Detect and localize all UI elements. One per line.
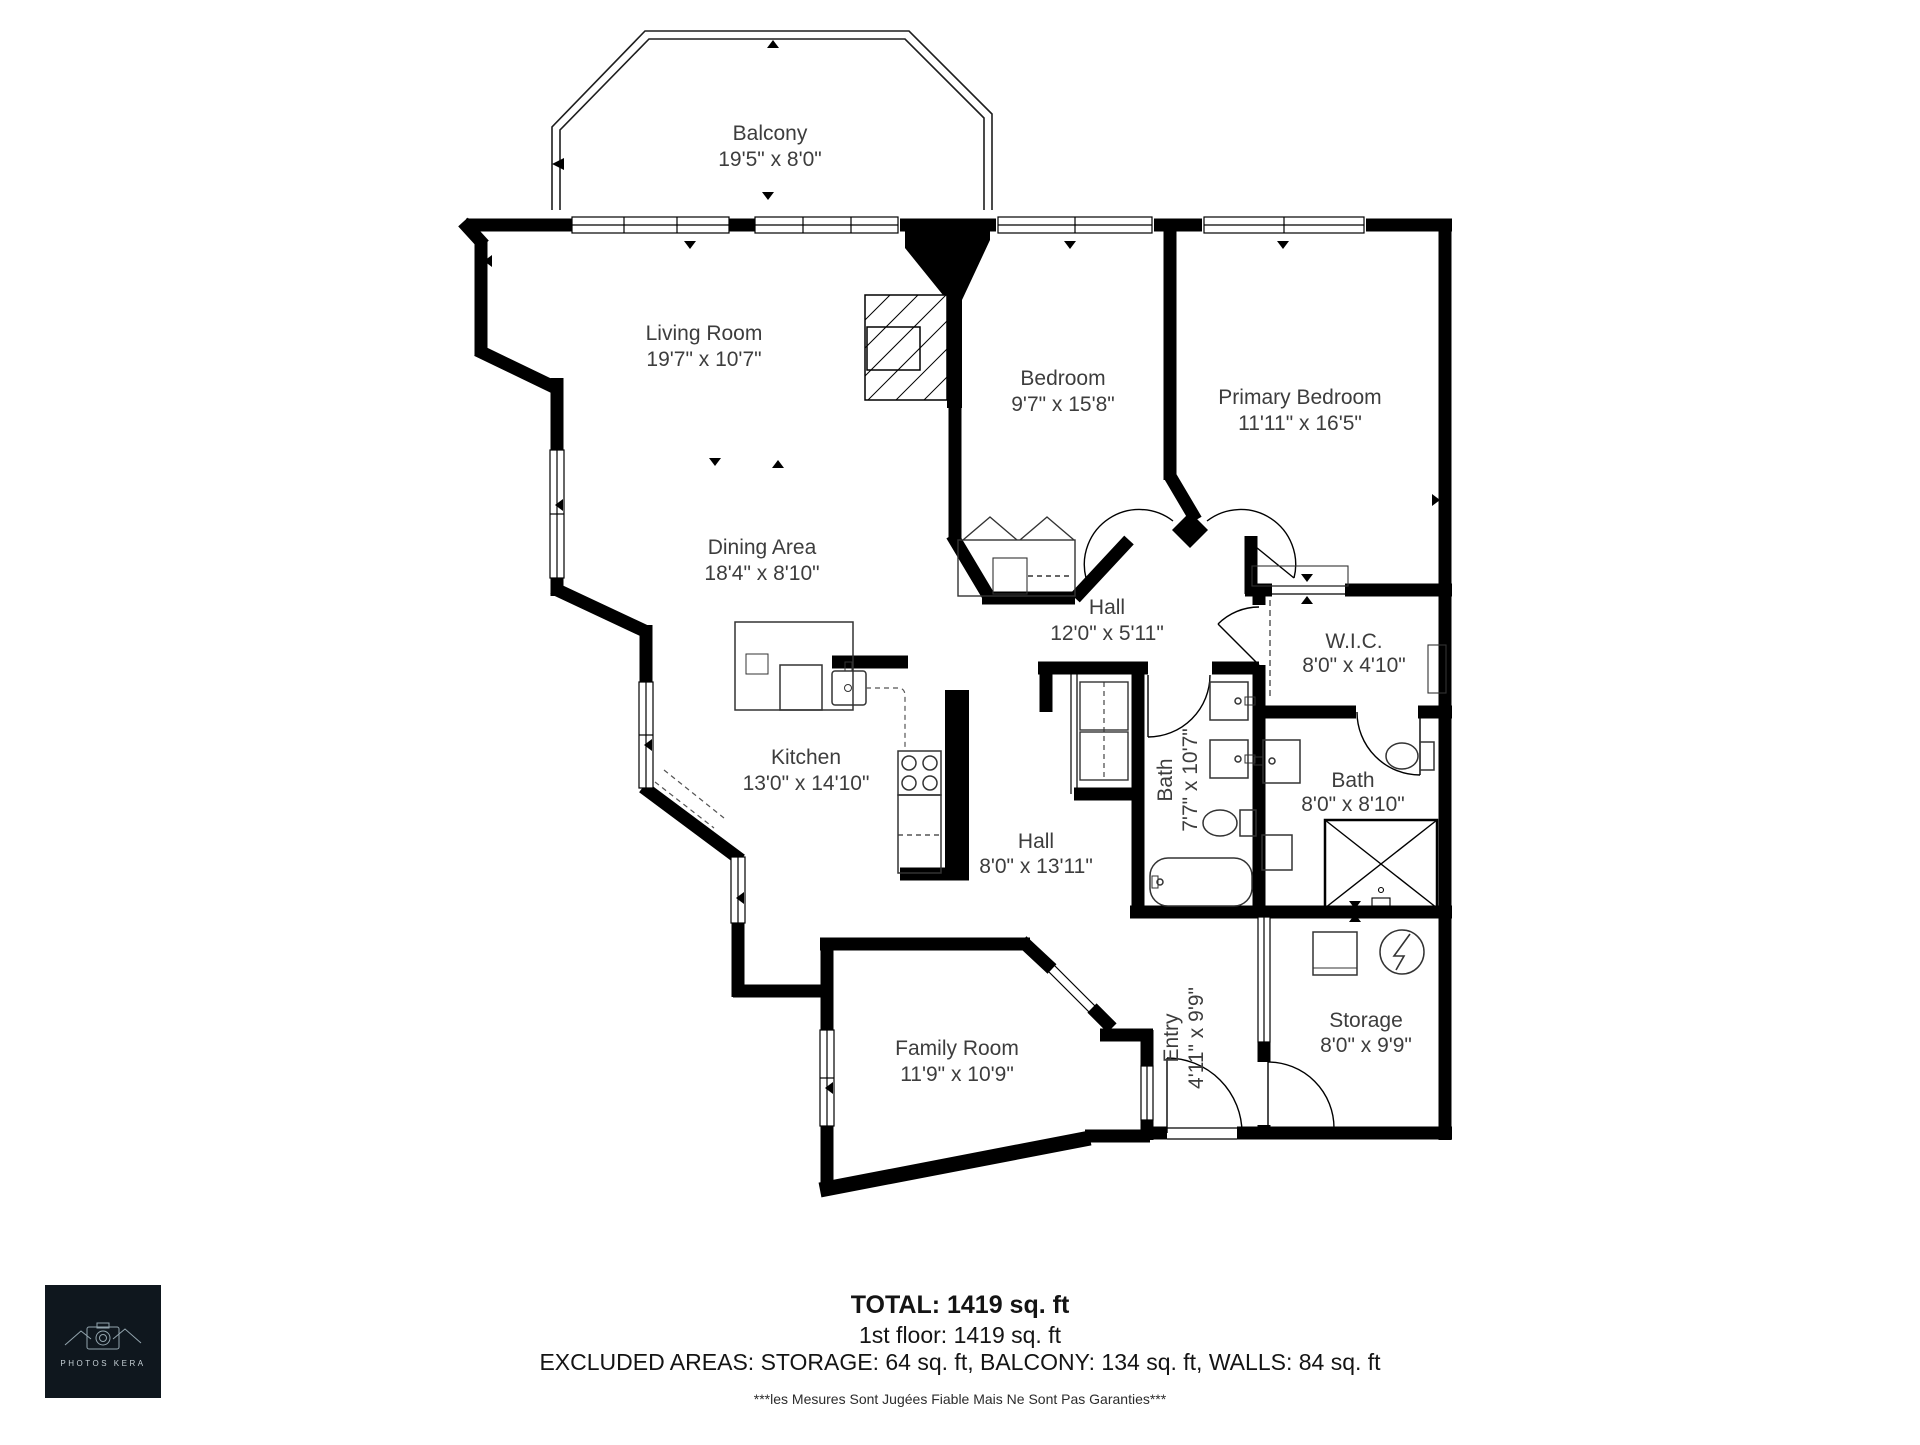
toilet-ensuite [1386, 742, 1434, 770]
total-area-text: TOTAL: 1419 sq. ft [0, 1291, 1920, 1320]
label-primary-bedroom: Primary Bedroom [1218, 386, 1381, 409]
bedroom-door [1084, 509, 1173, 578]
vanity-sink-2 [1210, 740, 1255, 778]
label-bedroom: Bedroom [1020, 367, 1105, 390]
floorplan-page: Balcony 19'5" x 8'0" Living Room 19'7" x… [0, 0, 1920, 1440]
stove [898, 751, 941, 795]
label-bath-main: Bath [1154, 758, 1177, 801]
dims-hall-upper: 12'0" x 5'11" [1050, 622, 1164, 645]
label-wic: W.I.C. [1325, 630, 1382, 653]
excluded-areas-text: EXCLUDED AREAS: STORAGE: 64 sq. ft, BALC… [0, 1349, 1920, 1376]
logo-text: PHOTOS KERA [60, 1359, 145, 1368]
storage-door [1268, 1062, 1334, 1128]
wic-door [1218, 607, 1259, 665]
dims-bath-main: 7'7" x 10'7" [1179, 728, 1202, 832]
disclaimer-text: ***les Mesures Sont Jugées Fiable Mais N… [0, 1391, 1920, 1407]
kitchen-base-cabinet [898, 795, 941, 873]
dims-storage: 8'0" x 9'9" [1320, 1034, 1412, 1057]
label-hall-upper: Hall [1089, 596, 1125, 619]
dims-hall-lower: 8'0" x 13'11" [979, 855, 1093, 878]
dims-bath-ensuite: 8'0" x 8'10" [1301, 793, 1405, 816]
window-family-left [820, 1030, 834, 1126]
dims-living-room: 19'7" x 10'7" [646, 348, 761, 371]
dims-wic: 8'0" x 4'10" [1302, 654, 1406, 677]
window-balcony-left [572, 217, 729, 233]
opening-family-room [1046, 963, 1098, 1015]
bath-ensuite-fixtures [1254, 740, 1437, 908]
door-pillar [1172, 512, 1208, 548]
bath-main-door [1148, 675, 1210, 737]
threshold-primary-wic [1272, 586, 1345, 594]
window-bedroom [998, 217, 1152, 233]
camera-house-icon [61, 1315, 145, 1355]
dims-bedroom: 9'7" x 15'8" [1011, 393, 1115, 416]
label-hall-lower: Hall [1018, 830, 1054, 853]
window-balcony-right [755, 217, 898, 233]
dims-entry: 4'11" x 9'9" [1185, 987, 1208, 1089]
window-kitchen-left [731, 857, 745, 923]
floorplan-drawing: Balcony 19'5" x 8'0" Living Room 19'7" x… [0, 0, 1920, 1440]
shower [1325, 820, 1437, 908]
dims-dining-area: 18'4" x 8'10" [704, 562, 819, 585]
label-kitchen: Kitchen [771, 746, 841, 769]
fireplace [865, 295, 947, 400]
label-dining-area: Dining Area [708, 536, 817, 559]
label-family-room: Family Room [895, 1037, 1019, 1060]
dimension-arrows [484, 40, 1440, 1094]
photographer-logo: PHOTOS KERA [45, 1285, 161, 1398]
window-living-left [550, 450, 564, 578]
primary-closet-shelf [1252, 566, 1348, 586]
vanity-sink-1 [1210, 682, 1255, 720]
threshold-entry-door [1167, 1128, 1237, 1139]
window-primary-bedroom [1204, 217, 1364, 233]
bifold-laundry-nook [1071, 674, 1077, 794]
window-dining-left [639, 682, 653, 788]
dims-balcony: 19'5" x 8'0" [718, 148, 822, 171]
toilet-main [1203, 810, 1256, 836]
label-entry: Entry [1160, 1013, 1183, 1063]
balcony-outline [552, 31, 992, 210]
label-bath-ensuite: Bath [1331, 769, 1374, 792]
bathtub [1150, 858, 1252, 906]
storage-fixtures [1313, 930, 1424, 975]
family-room-diagonal-wall [820, 1138, 1090, 1190]
label-balcony: Balcony [733, 122, 808, 145]
dims-family-room: 11'9" x 10'9" [900, 1063, 1014, 1086]
ensuite-cabinet [1262, 835, 1292, 870]
label-storage: Storage [1329, 1009, 1403, 1032]
window-entry-sidelight [1141, 1066, 1153, 1120]
first-floor-area-text: 1st floor: 1419 sq. ft [0, 1322, 1920, 1349]
dims-primary-bedroom: 11'11" x 16'5" [1238, 412, 1362, 435]
thin-wall-entry-storage [1258, 917, 1270, 1042]
label-living-room: Living Room [646, 322, 763, 345]
electrical-panel-icon [1380, 930, 1424, 974]
laundry-nook [1080, 682, 1128, 780]
bath-ensuite-door [1357, 712, 1420, 775]
dims-kitchen: 13'0" x 14'10" [743, 772, 870, 795]
